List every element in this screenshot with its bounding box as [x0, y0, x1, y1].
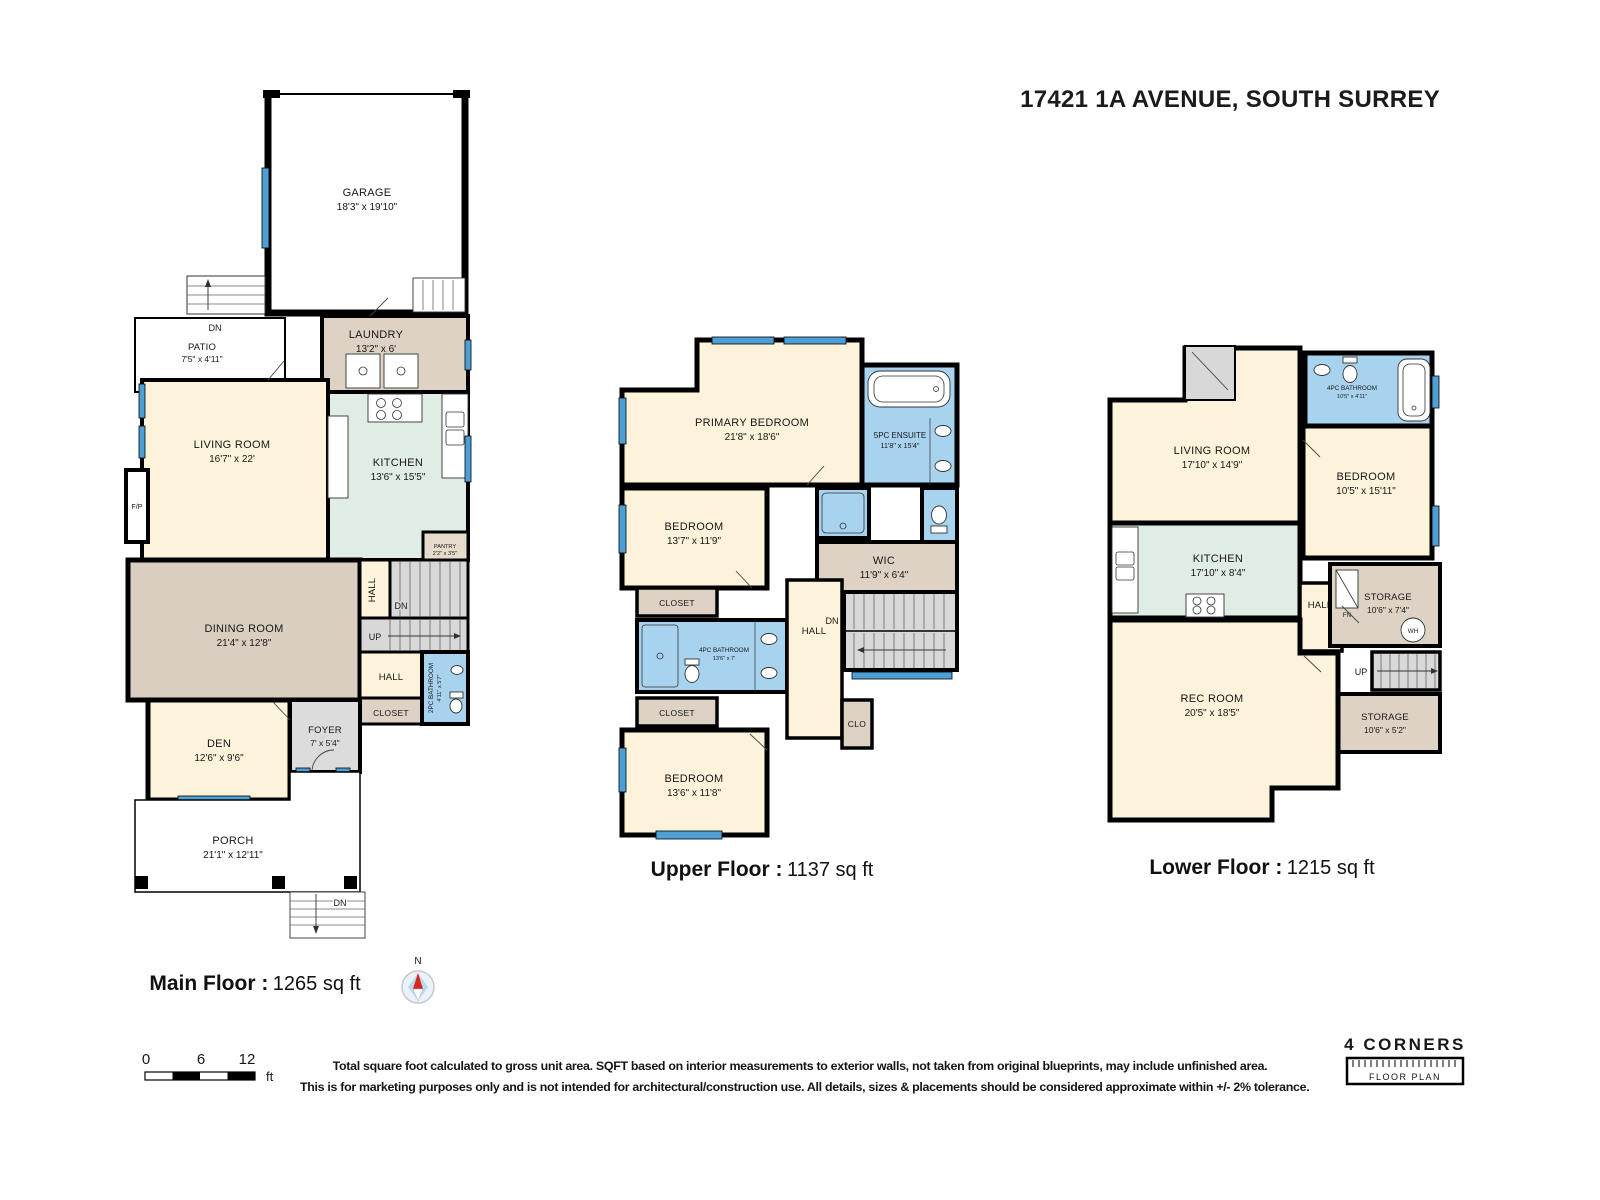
- toilet-icon: [1343, 357, 1357, 363]
- up-label: UP: [369, 632, 382, 642]
- window: [852, 672, 952, 679]
- wall-corner: [263, 90, 280, 98]
- room-4pc-bathroom: 4PC BATHROOM 13'6" x 7': [637, 620, 787, 692]
- main-floor-caption-label: Main Floor :: [149, 972, 268, 995]
- logo-ruler-ticks: [1353, 1060, 1455, 1067]
- rec-dims: 20'5" x 18'5": [1185, 708, 1240, 719]
- main-floor-plan: GARAGE 18'3" x 19'10" DN PATIO 7'5" x 4'…: [120, 80, 490, 950]
- room-ensuite: 5PC ENSUITE 11'8" x 15'4": [862, 365, 957, 485]
- north-label: N: [414, 956, 421, 967]
- hall-label: HALL: [379, 672, 404, 683]
- window: [1432, 376, 1439, 408]
- room-2pc-bathroom: 2PC BATHROOM 4'11" x 5'7": [422, 652, 468, 724]
- upper-floor-caption-sqft: 1137 sq ft: [787, 859, 873, 881]
- room-living: [142, 380, 328, 560]
- bedroom3-dims: 13'6" x 11'8": [667, 788, 722, 799]
- scale-tick-0: 0: [142, 1051, 150, 1068]
- stairs-icon: [413, 278, 465, 312]
- garage-dims: 18'3" x 19'10": [337, 202, 398, 213]
- bedroom-label: BEDROOM: [1337, 471, 1396, 483]
- logo-sub: FLOOR PLAN: [1369, 1072, 1441, 1082]
- main-floor-caption: Main Floor : 1265 sq ft: [105, 972, 405, 996]
- lower-floor-caption: Lower Floor : 1215 sq ft: [1112, 856, 1412, 880]
- toilet-icon: [922, 488, 957, 542]
- bath-label: 4PC BATHROOM: [699, 647, 749, 654]
- stove-icon: [368, 394, 422, 422]
- rec-label: REC ROOM: [1181, 693, 1244, 705]
- stove-icon: [1186, 594, 1224, 617]
- window: [619, 505, 626, 553]
- storage1-label: STORAGE: [1364, 592, 1412, 603]
- window: [1432, 506, 1439, 546]
- living-label: LIVING ROOM: [1174, 445, 1251, 457]
- kitchen-label: KITCHEN: [373, 457, 423, 469]
- up-label: UP: [1355, 667, 1368, 677]
- stairs-icon: [844, 592, 957, 670]
- bath-label: 4PC BATHROOM: [1327, 385, 1377, 392]
- room-hall: [787, 580, 842, 738]
- fn-label: FN: [1343, 612, 1352, 619]
- bedroom2-label: BEDROOM: [665, 521, 724, 533]
- upper-floor-caption-label: Upper Floor :: [651, 858, 783, 881]
- window: [656, 831, 722, 839]
- upper-floor-caption: Upper Floor : 1137 sq ft: [612, 858, 912, 882]
- room-foyer: [290, 700, 360, 772]
- sink-icon: [1314, 365, 1330, 376]
- pantry-dims: 2'2" x 3'5": [433, 551, 457, 557]
- patio-label: PATIO: [188, 342, 216, 353]
- toilet-icon: [685, 659, 699, 665]
- page-title: 17421 1A AVENUE, SOUTH SURREY: [830, 86, 1440, 114]
- porch-dims: 21'1" x 12'11": [203, 850, 263, 861]
- compass-icon: N: [395, 952, 441, 1010]
- storage2-dims: 10'6" x 5'2": [1364, 725, 1406, 735]
- upper-floor-plan: PRIMARY BEDROOM 21'8" x 18'6" 5PC ENSUIT…: [612, 330, 972, 845]
- window: [784, 337, 846, 344]
- bedroom2-dims: 13'7" x 11'9": [667, 536, 722, 547]
- storage2-label: STORAGE: [1361, 712, 1409, 723]
- room-4pc-bathroom: 4PC BATHROOM 10'5" x 4'11": [1305, 353, 1432, 426]
- stairs-icon: [187, 276, 265, 314]
- kitchen-dims: 17'10" x 8'4": [1191, 568, 1246, 579]
- scale-unit: ft: [266, 1069, 274, 1084]
- shower-icon: [817, 488, 869, 538]
- fp-label: F/P: [131, 502, 142, 511]
- stairs-icon: UP: [360, 618, 468, 652]
- fireplace: F/P: [126, 470, 148, 542]
- porch-label: PORCH: [212, 835, 253, 847]
- window: [465, 436, 471, 482]
- ensuite-label: 5PC ENSUITE: [874, 431, 926, 440]
- window: [619, 748, 626, 792]
- porch-post: [344, 876, 357, 889]
- pantry-label: PANTRY: [434, 544, 456, 550]
- kitchen-island: [328, 416, 348, 498]
- porch-post: [272, 876, 285, 889]
- hall-label: HALL: [367, 578, 378, 603]
- den-label: DEN: [207, 738, 231, 750]
- bedroom3-label: BEDROOM: [665, 773, 724, 785]
- bath-dims: 10'5" x 4'11": [1337, 394, 1367, 400]
- sink-icon: [935, 426, 951, 437]
- window: [139, 426, 145, 458]
- living-dims: 16'7" x 22': [209, 454, 255, 465]
- lower-floor-plan: LIVING ROOM 17'10" x 14'9" 4PC BATHROOM …: [1100, 338, 1450, 828]
- lower-floor-caption-sqft: 1215 sq ft: [1287, 857, 1375, 879]
- clo-label: CLO: [848, 719, 866, 729]
- bath-dims: 13'6" x 7': [713, 656, 735, 662]
- toilet-icon: [450, 692, 463, 698]
- room-primary-bedroom: [622, 340, 862, 485]
- scale-bar: 0 6 12 ft: [135, 1050, 295, 1092]
- dn-label: DN: [209, 323, 222, 333]
- disclaimer-line2: This is for marketing purposes only and …: [300, 1077, 1300, 1098]
- stairs-icon: [1372, 652, 1440, 690]
- scale-tick-6: 6: [197, 1051, 205, 1068]
- primary-label: PRIMARY BEDROOM: [695, 417, 809, 429]
- room-den: [148, 700, 290, 800]
- wic-label: WIC: [873, 555, 895, 567]
- kitchen-label: KITCHEN: [1193, 553, 1243, 565]
- primary-dims: 21'8" x 18'6": [725, 432, 780, 443]
- room-storage1: FN WH STORAGE 10'6" x 7'4": [1330, 564, 1440, 646]
- wall-corner: [453, 90, 470, 98]
- dn-label: DN: [334, 898, 347, 908]
- window: [139, 384, 145, 418]
- den-dims: 12'6" x 9'6": [194, 753, 244, 764]
- wic-dims: 11'9" x 6'4": [860, 570, 909, 581]
- garage-label: GARAGE: [343, 187, 392, 199]
- four-corners-logo: 4 CORNERS FLOOR PLAN: [1343, 1030, 1468, 1094]
- laundry-dims: 13'2" x 6': [356, 344, 396, 355]
- dining-dims: 21'4" x 12'8": [217, 638, 272, 649]
- patio-dims: 7'5" x 4'11": [181, 354, 222, 364]
- main-floor-caption-sqft: 1265 sq ft: [273, 973, 361, 995]
- lower-floor-caption-label: Lower Floor :: [1149, 856, 1282, 879]
- living-dims: 17'10" x 14'9": [1182, 460, 1243, 471]
- bath-label: 2PC BATHROOM: [428, 663, 435, 713]
- sink-icon: [442, 394, 468, 478]
- window: [712, 337, 774, 344]
- scale-tick-12: 12: [239, 1051, 256, 1068]
- disclaimer: Total square foot calculated to gross un…: [300, 1056, 1300, 1098]
- closet-label: CLOSET: [373, 708, 409, 718]
- stairs-icon: DN: [290, 892, 365, 938]
- entry-landing: [1185, 346, 1235, 400]
- ensuite-dims: 11'8" x 15'4": [881, 441, 920, 450]
- room-storage2: [1330, 694, 1440, 752]
- porch-post: [135, 876, 148, 889]
- kitchen-dims: 13'6" x 15'5": [371, 472, 426, 483]
- bath-dims: 4'11" x 5'7": [437, 674, 443, 701]
- bedroom-dims: 10'5" x 15'11": [1336, 486, 1396, 497]
- dn-label: DN: [395, 601, 408, 611]
- dining-label: DINING ROOM: [204, 623, 283, 635]
- window: [465, 340, 471, 370]
- sink-icon: [761, 634, 777, 645]
- sink-icon: [935, 461, 951, 472]
- foyer-dims: 7' x 5'4": [310, 738, 339, 748]
- sink-icon: [761, 668, 777, 679]
- laundry-label: LAUNDRY: [349, 329, 404, 341]
- hall-label: HALL: [802, 626, 827, 637]
- foyer-label: FOYER: [308, 725, 342, 736]
- closet-label: CLOSET: [659, 708, 695, 718]
- closet-label: CLOSET: [659, 598, 695, 608]
- sink-icon: [1112, 527, 1138, 613]
- logo-name: 4 CORNERS: [1344, 1035, 1466, 1054]
- window: [262, 168, 269, 248]
- wh-label: WH: [1408, 628, 1419, 635]
- dn-label: DN: [826, 616, 839, 626]
- stairs-icon: DN: [390, 560, 468, 618]
- living-label: LIVING ROOM: [194, 439, 271, 451]
- sink-icon: [451, 666, 463, 675]
- storage1-dims: 10'6" x 7'4": [1367, 605, 1409, 615]
- window: [619, 398, 626, 444]
- disclaimer-line1: Total square foot calculated to gross un…: [300, 1056, 1300, 1077]
